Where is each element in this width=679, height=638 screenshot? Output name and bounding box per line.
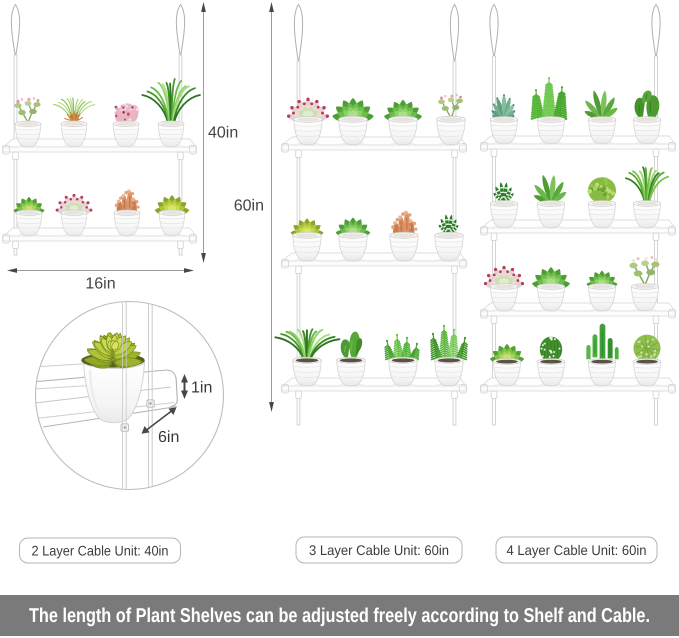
- svg-text:1in: 1in: [191, 380, 212, 397]
- svg-text:The length of Plant Shelves ca: The length of Plant Shelves can be adjus…: [29, 605, 650, 627]
- svg-text:16in: 16in: [85, 276, 115, 293]
- svg-text:2 Layer Cable Unit: 40in: 2 Layer Cable Unit: 40in: [32, 543, 169, 559]
- svg-text:40in: 40in: [208, 125, 238, 142]
- svg-text:6in: 6in: [158, 429, 179, 446]
- svg-text:3 Layer Cable Unit: 60in: 3 Layer Cable Unit: 60in: [309, 542, 449, 558]
- svg-text:60in: 60in: [234, 198, 264, 215]
- svg-text:4 Layer Cable Unit: 60in: 4 Layer Cable Unit: 60in: [507, 542, 647, 558]
